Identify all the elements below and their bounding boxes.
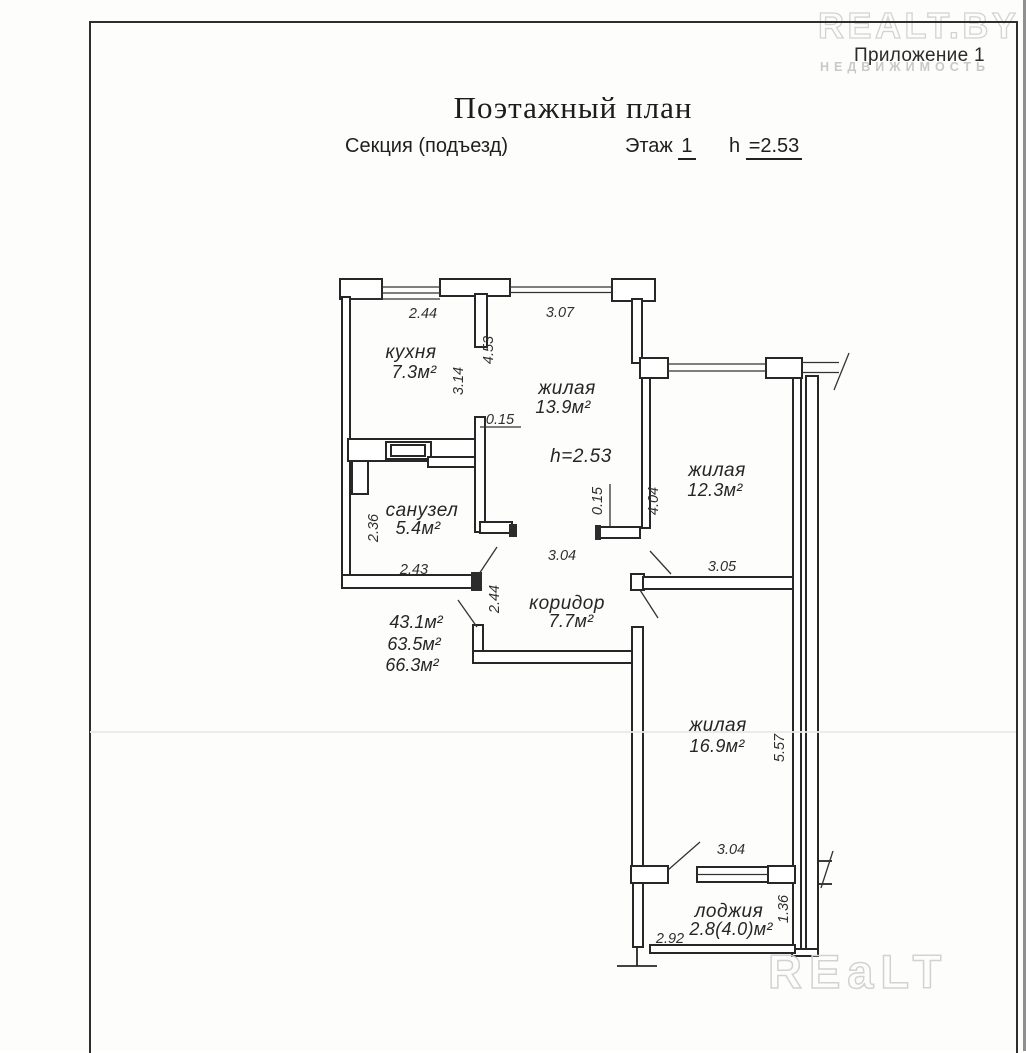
dimension-corridor-length: 2.44 [487,585,503,614]
dimension-kitchen-depth: 3.14 [451,367,467,395]
dimension-living1-depth: 4.53 [481,336,497,364]
area-summary: 43.1м² 63.5м² 66.3м² [385,612,443,675]
dimension-bathroom-width: 2.43 [399,562,428,578]
room-area: 5.4м² [396,518,442,538]
room-area: 13.9м² [535,397,591,417]
dimension-loggia-width: 2.92 [655,931,684,947]
dimension-loggia-depth: 1.36 [776,894,792,923]
scanned-floor-plan-page: REALT.BY НЕДВИЖИМОСТЬ Приложение 1 Поэта… [0,0,1026,1051]
room-name: жилая [537,378,596,399]
room-area: 2.8(4.0)м² [688,919,773,939]
area-summary-apartment: 63.5м² [387,634,441,654]
room-area: 16.9м² [689,736,745,756]
room-area: 7.3м² [392,362,438,382]
room-label-corridor: коридор 7.7м² [529,593,605,631]
dimension-living3-depth: 5.57 [772,733,788,762]
dimension-corridor-width: 3.04 [548,548,576,564]
realt-watermark-bottom-text: REaLT [768,945,948,998]
room-area: 7.7м² [549,611,595,631]
dimension-wall-thickness-right: 0.15 [590,486,606,515]
wall-structure-right [792,376,832,956]
room-name: кухня [385,342,436,363]
wall-structure-top [340,279,655,588]
room-label-living3: жилая 16.9м² [688,715,747,756]
room-label-bathroom: санузел 5.4м² [386,500,459,538]
room-label-loggia: лоджия 2.8(4.0)м² [688,901,773,939]
dimension-kitchen-window: 2.44 [408,306,437,322]
room-label-kitchen: кухня 7.3м² [385,342,437,382]
floor-plan-svg: кухня 7.3м² жилая 13.9м² h=2.53 санузел … [0,0,1026,1051]
area-summary-with-loggia: 66.3м² [385,655,439,675]
dimension-wall-thickness-left: 0.15 [486,412,515,428]
ceiling-height-note: h=2.53 [550,446,612,467]
wall-break-marks [821,353,849,888]
scan-line-artifact [90,731,1016,733]
room-name: жилая [687,460,746,481]
dimension-living3-width: 3.04 [717,842,745,858]
dimension-living2-width: 3.05 [708,559,737,575]
room-area: 12.3м² [687,480,743,500]
dimension-bathroom-depth: 2.36 [366,513,382,543]
watermark-bottom: REaLT [762,942,1002,1004]
room-label-living1: жилая 13.9м² [535,378,595,417]
area-summary-living: 43.1м² [389,612,443,632]
dimension-living1-window: 3.07 [546,305,575,321]
dimension-living2-depth: 4.04 [646,487,662,515]
room-label-living2: жилая 12.3м² [687,460,746,500]
